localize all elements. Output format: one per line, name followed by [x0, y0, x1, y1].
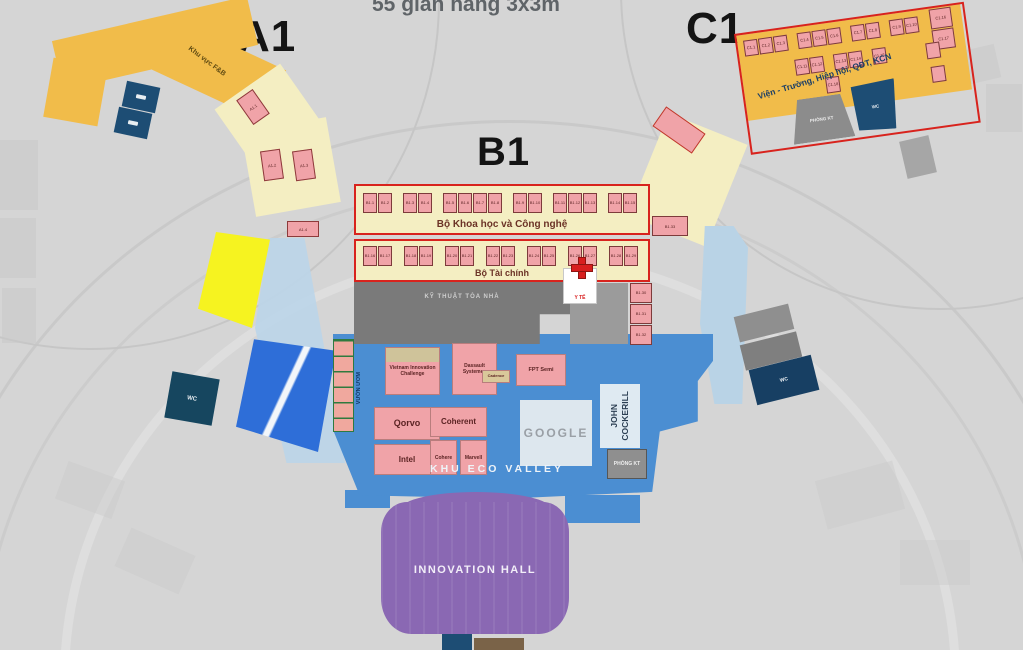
booth-group: B1.3B1.4 — [403, 193, 432, 213]
hall-annex-brown — [474, 638, 524, 650]
booth: B1.32 — [630, 325, 652, 345]
hall-annex — [442, 634, 472, 650]
booth: B1.11 — [553, 193, 567, 213]
exhibitor-vic: Vietnam Innovation Challenge — [385, 347, 440, 395]
booth-group: B1.5B1.6B1.7B1.8 — [443, 193, 502, 213]
booth-group: B1.28B1.29 — [609, 246, 638, 266]
exhibitor-cadence: Cadence — [482, 370, 510, 383]
building-tech-block: KỸ THUẬT TÒA NHÀ — [354, 282, 570, 344]
b1-science-band: B1.1B1.2B1.3B1.4B1.5B1.6B1.7B1.8B1.9B1.1… — [354, 184, 650, 235]
booth-group: B1.18B1.19 — [404, 246, 433, 266]
john-cockerill-label: JOHN COCKERILL — [609, 391, 631, 441]
science-booth-row: B1.1B1.2B1.3B1.4B1.5B1.6B1.7B1.8B1.9B1.1… — [363, 193, 637, 213]
booth: B1.8 — [488, 193, 502, 213]
finance-booth-row: B1.16B1.17B1.18B1.19B1.20B1.21B1.22B1.23… — [363, 246, 638, 266]
background-lot — [0, 140, 38, 210]
exhibitor-fpt-semi: FPT Semi — [516, 354, 566, 386]
building-tech-label: KỸ THUẬT TÒA NHÀ — [354, 294, 570, 300]
background-lot — [900, 540, 970, 585]
b1-finance-band: B1.16B1.17B1.18B1.19B1.20B1.21B1.22B1.23… — [354, 239, 650, 282]
exhibitor-google: GOOGLE — [520, 400, 592, 466]
zone-label-b1: B1 — [477, 130, 530, 175]
eco-valley-tab — [565, 495, 640, 523]
booth-group: B1.14B1.15 — [608, 193, 637, 213]
page-title: 55 gian hàng 3x3m — [372, 0, 560, 17]
booth-group: B1.1B1.2 — [363, 193, 392, 213]
ministry-finance-label: Bộ Tài chính — [356, 268, 648, 278]
exhibitor-john-cockerill: JOHN COCKERILL — [600, 384, 640, 448]
exhibitor-coherent: Coherent — [430, 407, 487, 437]
booth: B1.18 — [404, 246, 418, 266]
booth: B1.9 — [513, 193, 527, 213]
booth: B1.10 — [528, 193, 542, 213]
a1-gold-strip-small — [43, 58, 108, 127]
incubator-label: VƯỜN ƯƠM — [356, 372, 362, 404]
side-booth-column: B1.30B1.31B1.32 — [630, 283, 652, 345]
booth: B1.30 — [630, 283, 652, 303]
booth: B1.23 — [501, 246, 515, 266]
booth: B1.19 — [419, 246, 433, 266]
booth-group: B1.22B1.23 — [486, 246, 515, 266]
booth: B1.25 — [542, 246, 556, 266]
booth: B1.29 — [624, 246, 638, 266]
site-map: 55 gian hàng 3x3m A1 B1 C1 Khu vực F&B A… — [0, 0, 1023, 650]
a1-pale-band — [241, 117, 341, 217]
background-lot — [0, 218, 36, 278]
booth: B1.13 — [583, 193, 597, 213]
booth-group: B1.24B1.25 — [527, 246, 556, 266]
booth: B1.7 — [473, 193, 487, 213]
exhibitor-dassault: Dassault Systemes — [452, 343, 497, 395]
booth: B1.16 — [363, 246, 377, 266]
innovation-hall: INNOVATION HALL — [381, 502, 569, 634]
booth-group: B1.20B1.21 — [445, 246, 474, 266]
red-cross-icon — [571, 257, 591, 277]
booth: B1.5 — [443, 193, 457, 213]
innovation-hall-label: INNOVATION HALL — [381, 564, 569, 576]
kiosk-icon — [128, 120, 139, 126]
incubator-booth-column — [333, 339, 354, 432]
booth: B1.28 — [609, 246, 623, 266]
booth: B1.15 — [623, 193, 637, 213]
wc-block: WC — [164, 371, 219, 426]
booth: B1.4 — [418, 193, 432, 213]
booth-group: B1.11B1.12B1.13 — [553, 193, 597, 213]
medical-label: Y TẾ — [564, 295, 596, 301]
utility-room: PHÒNG KT — [607, 449, 647, 479]
eco-valley-label: KHU ECO VALLEY — [430, 463, 564, 475]
kiosk-icon — [136, 94, 147, 100]
fb-area-label: Khu vực F&B — [187, 45, 227, 78]
booth: A1.4 — [287, 221, 319, 237]
booth: B1.17 — [378, 246, 392, 266]
booth: B1.21 — [460, 246, 474, 266]
booth: B1.31 — [630, 304, 652, 324]
booth: B1.3 — [403, 193, 417, 213]
booth: B1.20 — [445, 246, 459, 266]
background-lot — [2, 288, 36, 343]
booth: B1.24 — [527, 246, 541, 266]
booth-group: B1.30B1.31B1.32 — [630, 283, 652, 345]
wc-label: WC — [779, 376, 789, 384]
booth: B1.2 — [378, 193, 392, 213]
booth: B1.6 — [458, 193, 472, 213]
medical-station: Y TẾ — [563, 268, 597, 304]
booth: B1.1 — [363, 193, 377, 213]
booth-group: B1.16B1.17 — [363, 246, 392, 266]
booth: B1.14 — [608, 193, 622, 213]
wc-label: WC — [187, 395, 198, 403]
booth: B1.33 — [652, 216, 688, 236]
booth-group: B1.9B1.10 — [513, 193, 542, 213]
booth: A1.3 — [292, 149, 316, 181]
booth: A1.2 — [260, 149, 284, 181]
booth: B1.12 — [568, 193, 582, 213]
background-lot — [986, 84, 1022, 132]
ministry-science-label: Bộ Khoa học và Công nghệ — [356, 219, 648, 230]
booth: B1.22 — [486, 246, 500, 266]
